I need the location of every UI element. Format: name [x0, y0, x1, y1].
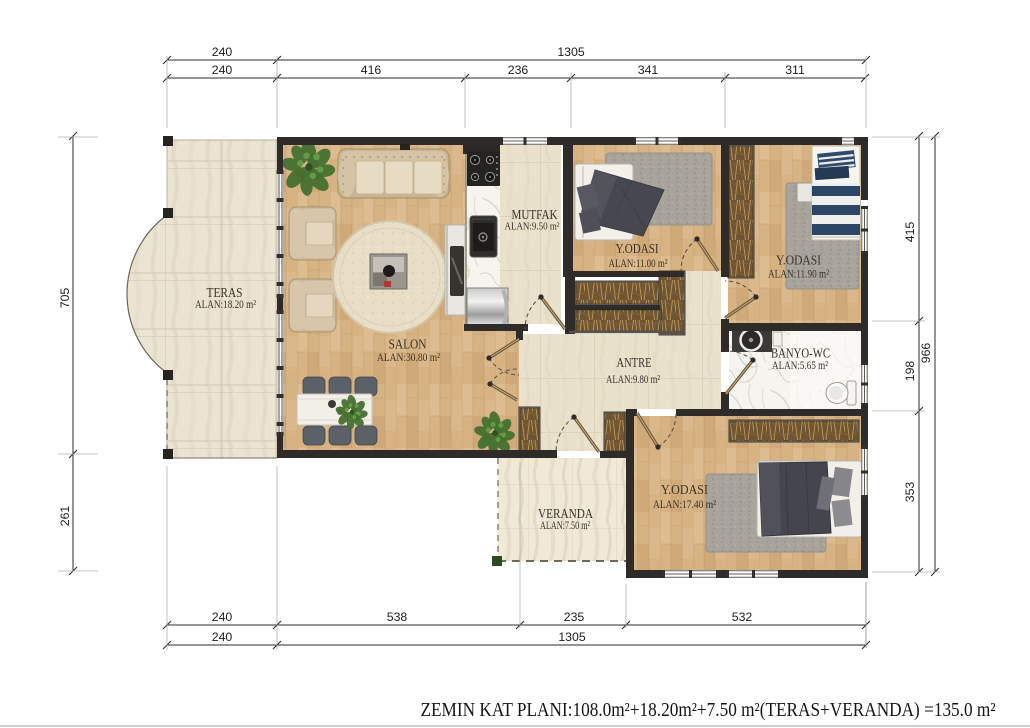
svg-text:236: 236 — [508, 63, 529, 77]
svg-text:ANTRE: ANTRE — [617, 355, 652, 370]
svg-text:240: 240 — [212, 45, 233, 59]
svg-text:ALAN:5.65 m²: ALAN:5.65 m² — [772, 360, 828, 372]
svg-text:BANYO-WC: BANYO-WC — [771, 346, 830, 361]
svg-text:SALON: SALON — [389, 338, 427, 353]
svg-text:341: 341 — [638, 63, 659, 77]
svg-text:ALAN:17.40 m²: ALAN:17.40 m² — [653, 499, 717, 511]
svg-text:415: 415 — [903, 222, 917, 243]
svg-text:Y.ODASI: Y.ODASI — [616, 241, 659, 256]
svg-text:235: 235 — [564, 610, 585, 624]
svg-text:416: 416 — [361, 63, 382, 77]
svg-text:ZEMIN KAT PLANI:108.0m²+18.20m: ZEMIN KAT PLANI:108.0m²+18.20m²+7.50 m²(… — [421, 700, 996, 721]
svg-text:ALAN:11.90 m²: ALAN:11.90 m² — [768, 269, 829, 281]
svg-text:353: 353 — [903, 482, 917, 503]
svg-text:VERANDA: VERANDA — [538, 506, 593, 521]
svg-text:240: 240 — [212, 63, 233, 77]
svg-text:Y.ODASI: Y.ODASI — [661, 482, 708, 497]
svg-text:532: 532 — [732, 610, 753, 624]
svg-text:261: 261 — [58, 506, 72, 527]
svg-text:705: 705 — [58, 288, 72, 309]
svg-text:ALAN:7.50 m²: ALAN:7.50 m² — [540, 520, 590, 532]
svg-text:966: 966 — [919, 343, 933, 364]
svg-text:538: 538 — [387, 610, 408, 624]
svg-text:1305: 1305 — [557, 45, 585, 59]
svg-text:ALAN:30.80 m²: ALAN:30.80 m² — [377, 352, 441, 364]
svg-text:198: 198 — [903, 361, 917, 382]
svg-text:311: 311 — [785, 63, 805, 77]
svg-text:1305: 1305 — [558, 630, 586, 644]
svg-text:ALAN:9.50 m²: ALAN:9.50 m² — [505, 221, 561, 233]
svg-text:ALAN:18.20 m²: ALAN:18.20 m² — [195, 299, 256, 311]
svg-text:240: 240 — [212, 610, 233, 624]
svg-text:Y.ODASI: Y.ODASI — [776, 253, 821, 268]
svg-text:ALAN:11.00 m²: ALAN:11.00 m² — [609, 258, 668, 270]
svg-text:240: 240 — [212, 630, 233, 644]
svg-text:ALAN:9.80 m²: ALAN:9.80 m² — [606, 374, 660, 386]
